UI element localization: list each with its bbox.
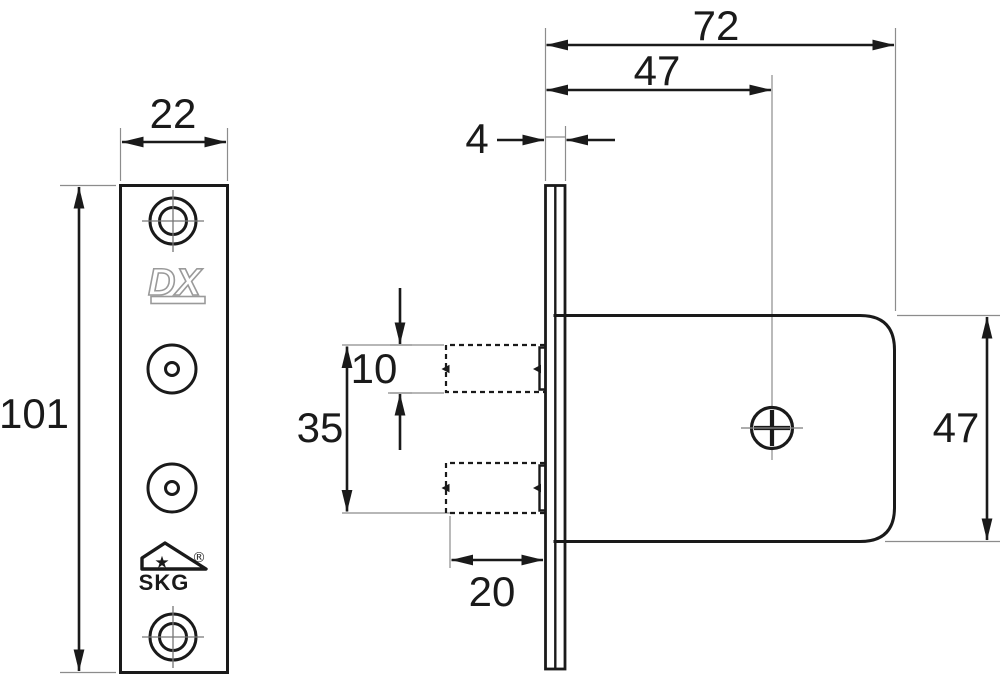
dim-label-case-height: 47	[933, 404, 980, 451]
locking-pin-hidden-bottom	[446, 463, 545, 513]
dim-label-pin-height: 10	[351, 345, 398, 392]
dim-label-backset: 47	[634, 47, 681, 94]
dim-label-total-depth: 72	[693, 2, 740, 49]
dim-pin-span: 35	[297, 347, 347, 512]
front-view: DX ★ ® SKG 22	[0, 90, 228, 673]
dim-plate-width: 22	[122, 90, 226, 142]
dx-logo-bar	[151, 297, 205, 304]
front-plate-outline	[121, 186, 228, 673]
dim-case-height: 47	[933, 317, 987, 540]
dim-pin-height: 10	[351, 288, 412, 450]
dim-label-faceplate-thickness: 4	[465, 115, 488, 162]
technical-drawing-lock: DX ★ ® SKG 22	[0, 0, 1000, 695]
drawing-canvas: DX ★ ® SKG 22	[0, 0, 1000, 695]
dim-label-pin-span: 35	[297, 404, 344, 451]
cylinder-hole-icon	[148, 464, 196, 512]
phillips-screw-icon	[741, 408, 803, 449]
dim-label-pin-protrusion: 20	[469, 568, 516, 615]
dim-plate-height: 101	[0, 187, 79, 671]
dx-logo: DX	[148, 262, 205, 304]
lock-case-outline	[555, 316, 895, 542]
locking-pin-hidden-top	[446, 345, 545, 392]
dim-pin-protrusion: 20	[452, 560, 544, 615]
dim-label-plate-height: 101	[0, 390, 69, 437]
dim-faceplate-thickness: 4	[465, 115, 615, 162]
dim-label-plate-width: 22	[150, 90, 197, 137]
side-view: 72 47 4 47 35 10	[297, 2, 1000, 669]
cylinder-hole-icon	[148, 345, 196, 393]
skg-logo-text: SKG	[139, 570, 190, 595]
dim-backset: 47	[547, 47, 772, 94]
registered-mark: ®	[192, 550, 206, 566]
dim-total-depth: 72	[547, 2, 895, 49]
